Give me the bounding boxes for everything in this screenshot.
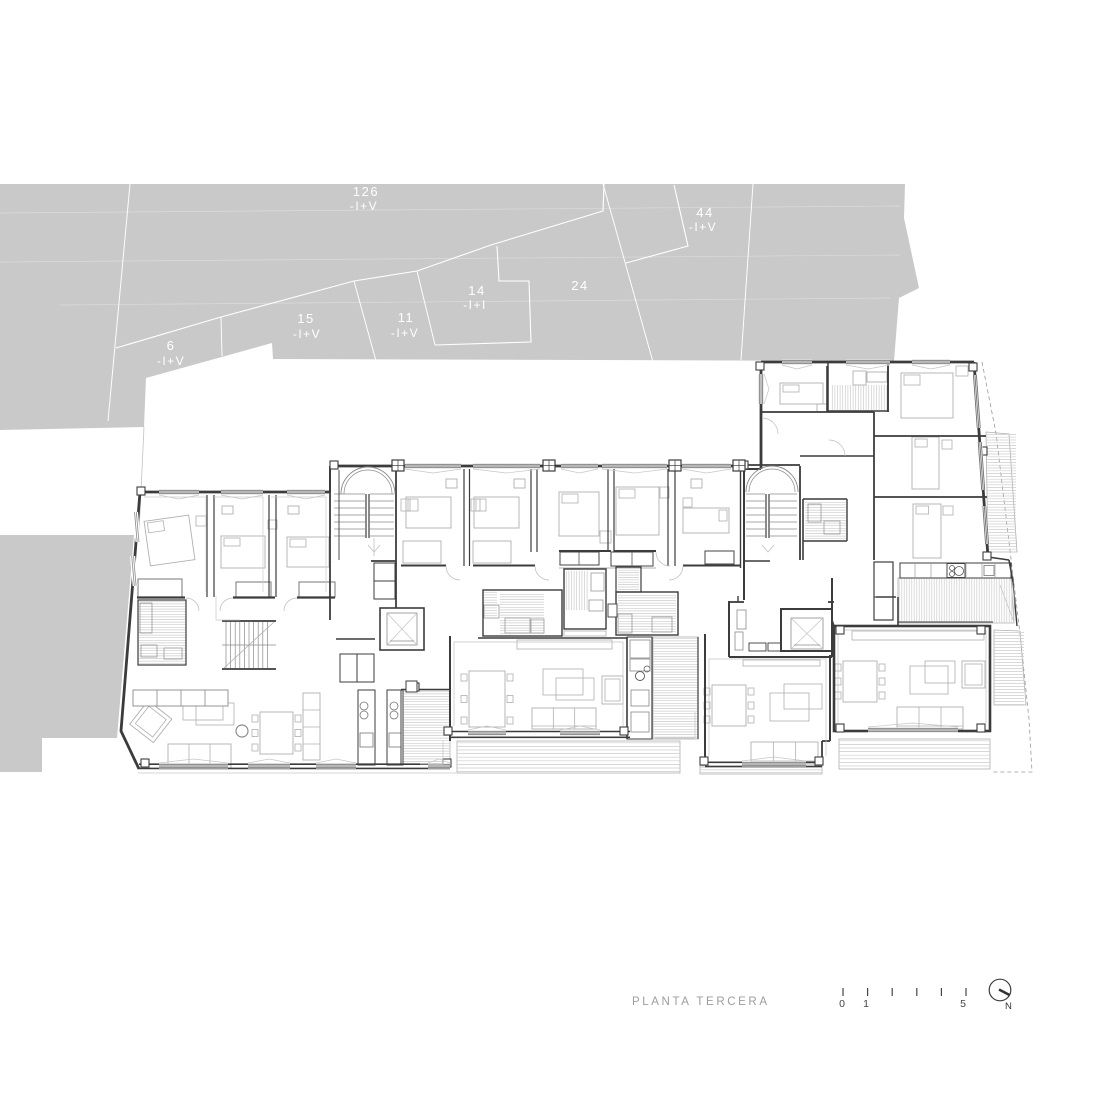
svg-text:-I+I: -I+I [463, 298, 487, 312]
svg-text:-I+V: -I+V [157, 354, 185, 368]
svg-text:1: 1 [863, 998, 869, 1010]
svg-text:PLANTA TERCERA: PLANTA TERCERA [632, 996, 770, 1008]
svg-text:24: 24 [571, 278, 588, 293]
svg-text:0: 0 [839, 998, 845, 1010]
svg-text:6: 6 [167, 338, 176, 353]
svg-text:14: 14 [468, 283, 485, 298]
svg-text:N: N [1005, 1001, 1012, 1012]
svg-text:11: 11 [398, 310, 415, 325]
svg-text:5: 5 [960, 998, 966, 1010]
svg-text:15: 15 [297, 311, 314, 326]
svg-text:-I+V: -I+V [293, 327, 321, 341]
svg-text:-I+V: -I+V [391, 326, 419, 340]
svg-text:-I+V: -I+V [689, 220, 717, 234]
svg-text:126: 126 [353, 184, 379, 199]
svg-text:44: 44 [696, 205, 713, 220]
svg-text:-I+V: -I+V [350, 199, 378, 213]
